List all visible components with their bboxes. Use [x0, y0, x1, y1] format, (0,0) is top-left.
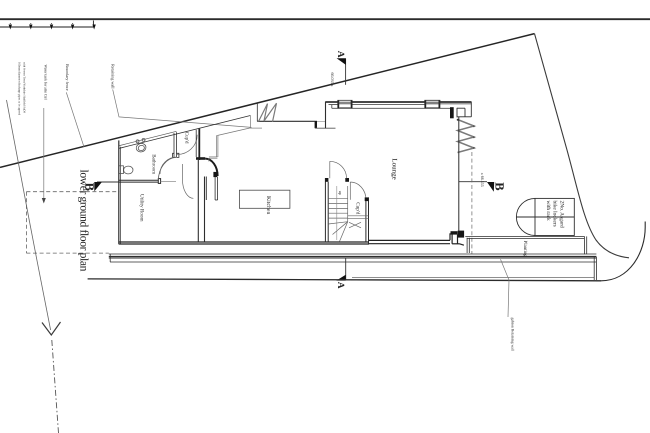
svg-text:up: up	[338, 191, 343, 195]
svg-text:Utility Room: Utility Room	[139, 194, 145, 222]
svg-text:B: B	[83, 183, 97, 191]
svg-text:Retaining wall: Retaining wall	[111, 64, 116, 89]
svg-text:gabion Retaining wall: gabion Retaining wall	[511, 318, 515, 352]
svg-text:Lounge: Lounge	[391, 158, 399, 179]
svg-text:A: A	[335, 282, 345, 289]
svg-text:Boundary fence: Boundary fence	[65, 64, 70, 91]
svg-text:66.035 x: 66.035 x	[330, 73, 335, 87]
svg-text:Bathroom: Bathroom	[150, 154, 156, 174]
svg-text:Cup'd: Cup'd	[184, 132, 190, 144]
svg-text:Kitchen: Kitchen	[265, 196, 272, 214]
svg-text:Planting: Planting	[522, 241, 528, 258]
svg-text:A: A	[335, 51, 345, 58]
svg-text:bike lockers: bike lockers	[552, 201, 558, 227]
svg-text:100mm diameter discharge pipes: 100mm diameter discharge pipes to be agr…	[18, 62, 22, 116]
svg-text:2No. Asgard: 2No. Asgard	[558, 201, 564, 229]
svg-text:with rack: with rack	[545, 201, 551, 222]
svg-text:B: B	[492, 182, 506, 190]
svg-text:Water tank for attn Ctrl: Water tank for attn Ctrl	[44, 65, 48, 100]
svg-text:x 66.555: x 66.555	[480, 173, 485, 187]
svg-text:Cup'd: Cup'd	[355, 202, 361, 215]
svg-text:with Severn Trent/Yorkshire Ha: with Severn Trent/Yorkshire Hadfield SuD…	[22, 62, 26, 113]
